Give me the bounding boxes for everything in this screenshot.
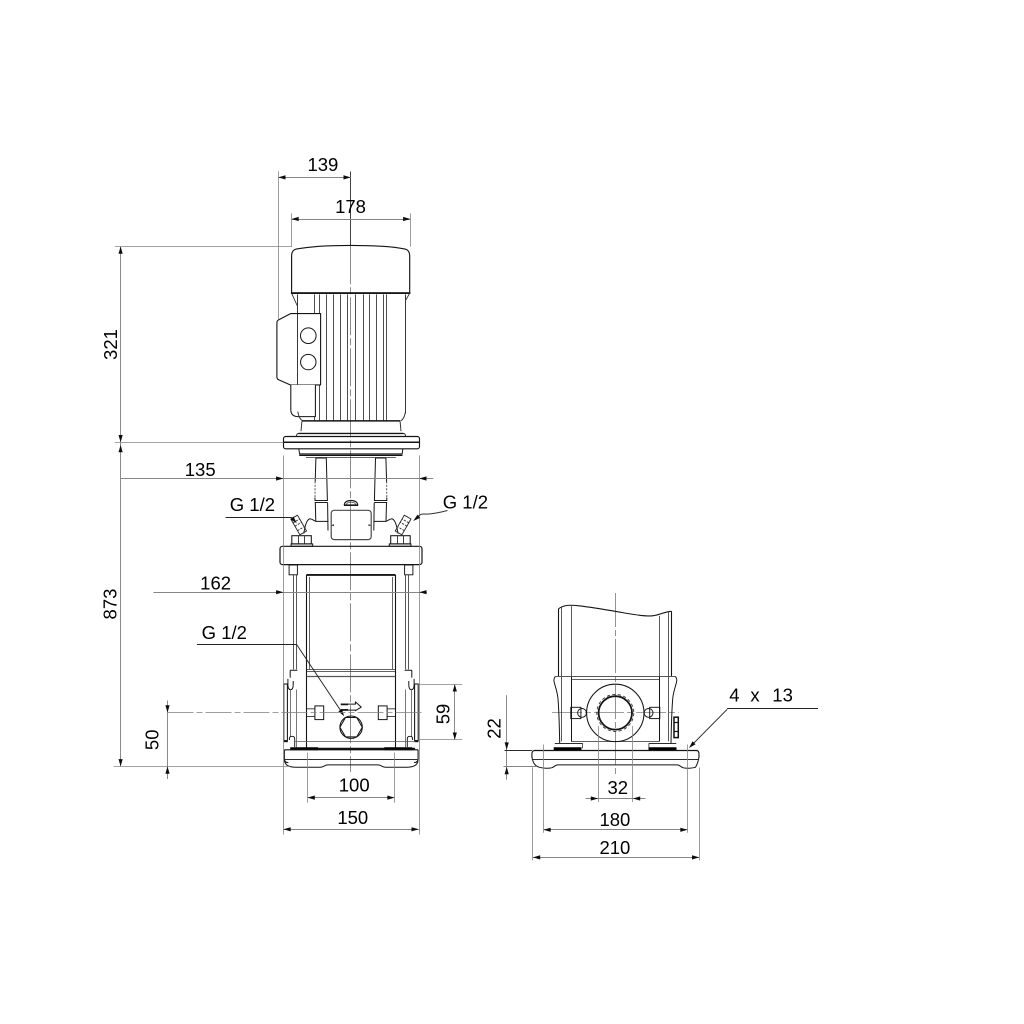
svg-text:22: 22 bbox=[484, 718, 505, 739]
svg-text:x: x bbox=[750, 685, 760, 706]
svg-text:321: 321 bbox=[100, 329, 121, 360]
svg-text:G 1/2: G 1/2 bbox=[230, 494, 275, 515]
svg-text:G 1/2: G 1/2 bbox=[202, 622, 247, 643]
svg-text:135: 135 bbox=[185, 459, 216, 480]
svg-text:210: 210 bbox=[599, 837, 630, 858]
svg-text:G 1/2: G 1/2 bbox=[443, 492, 488, 513]
svg-text:139: 139 bbox=[307, 154, 338, 175]
svg-text:13: 13 bbox=[772, 685, 793, 706]
svg-text:873: 873 bbox=[100, 589, 121, 620]
svg-text:100: 100 bbox=[339, 775, 370, 796]
svg-text:180: 180 bbox=[599, 809, 630, 830]
svg-text:32: 32 bbox=[608, 777, 629, 798]
svg-text:150: 150 bbox=[337, 807, 368, 828]
svg-text:162: 162 bbox=[200, 572, 231, 593]
svg-text:59: 59 bbox=[433, 704, 454, 725]
svg-text:50: 50 bbox=[142, 730, 163, 751]
svg-text:178: 178 bbox=[335, 196, 366, 217]
svg-text:4: 4 bbox=[729, 685, 739, 706]
